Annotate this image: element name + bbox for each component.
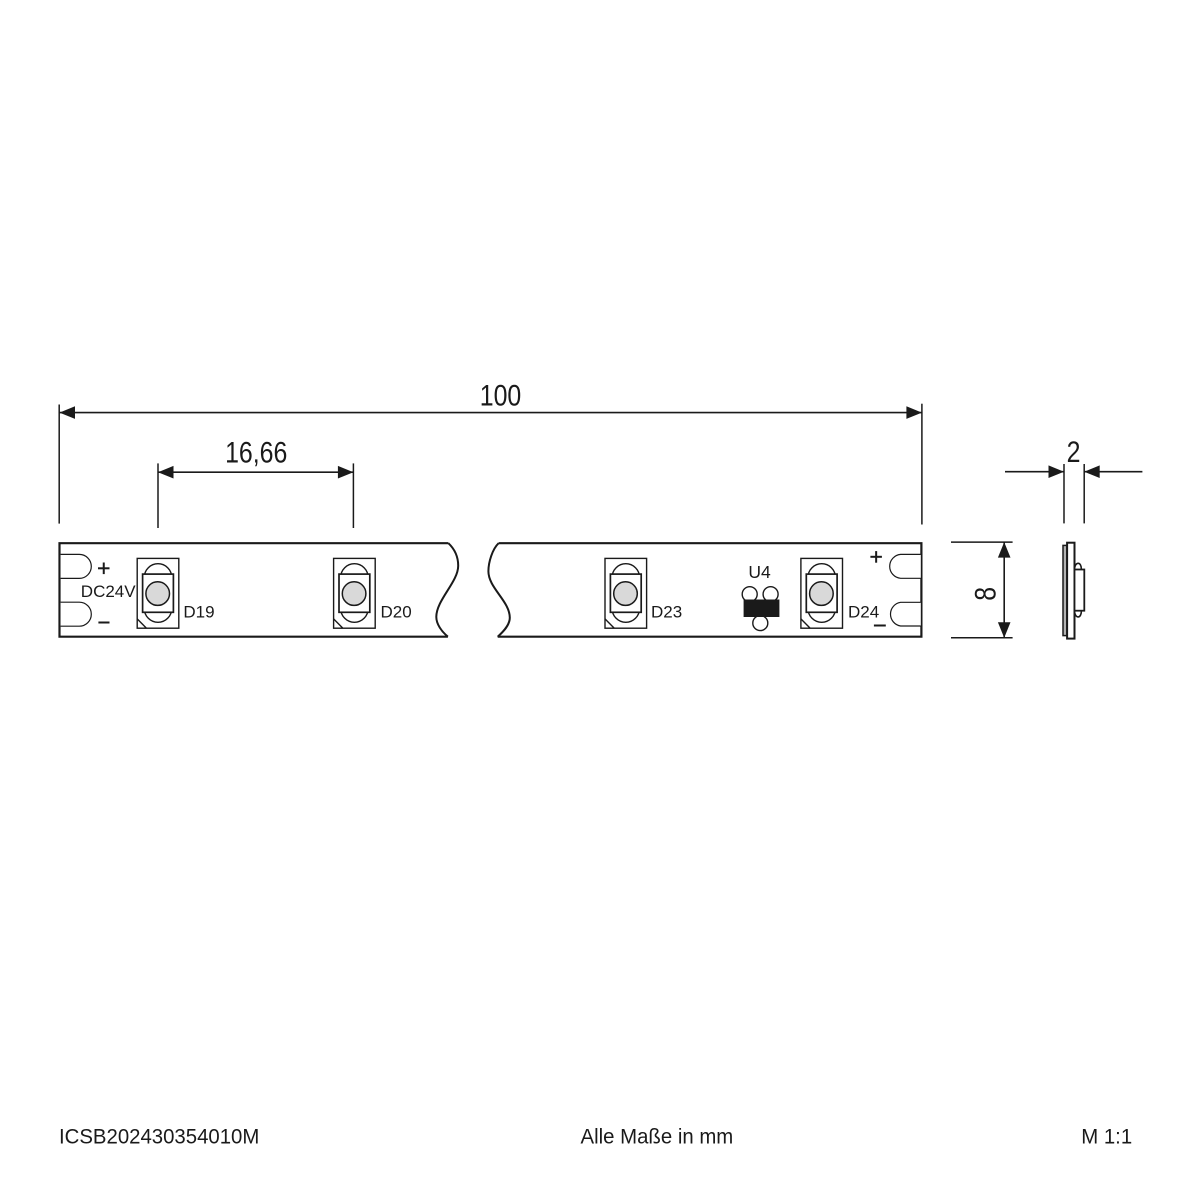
- svg-text:100: 100: [480, 378, 522, 412]
- svg-text:8: 8: [968, 587, 1002, 601]
- svg-text:D19: D19: [183, 603, 214, 622]
- svg-text:16,66: 16,66: [225, 435, 287, 469]
- svg-text:M 1:1: M 1:1: [1081, 1125, 1132, 1148]
- svg-text:Alle Maße in mm: Alle Maße in mm: [581, 1125, 734, 1148]
- svg-text:D20: D20: [381, 603, 412, 622]
- svg-text:U4: U4: [748, 562, 771, 582]
- svg-text:D24: D24: [848, 603, 879, 622]
- svg-text:DC24V: DC24V: [81, 582, 136, 601]
- svg-text:ICSB202430354010M: ICSB202430354010M: [59, 1125, 259, 1148]
- svg-text:D23: D23: [651, 603, 682, 622]
- svg-text:2: 2: [1067, 435, 1081, 469]
